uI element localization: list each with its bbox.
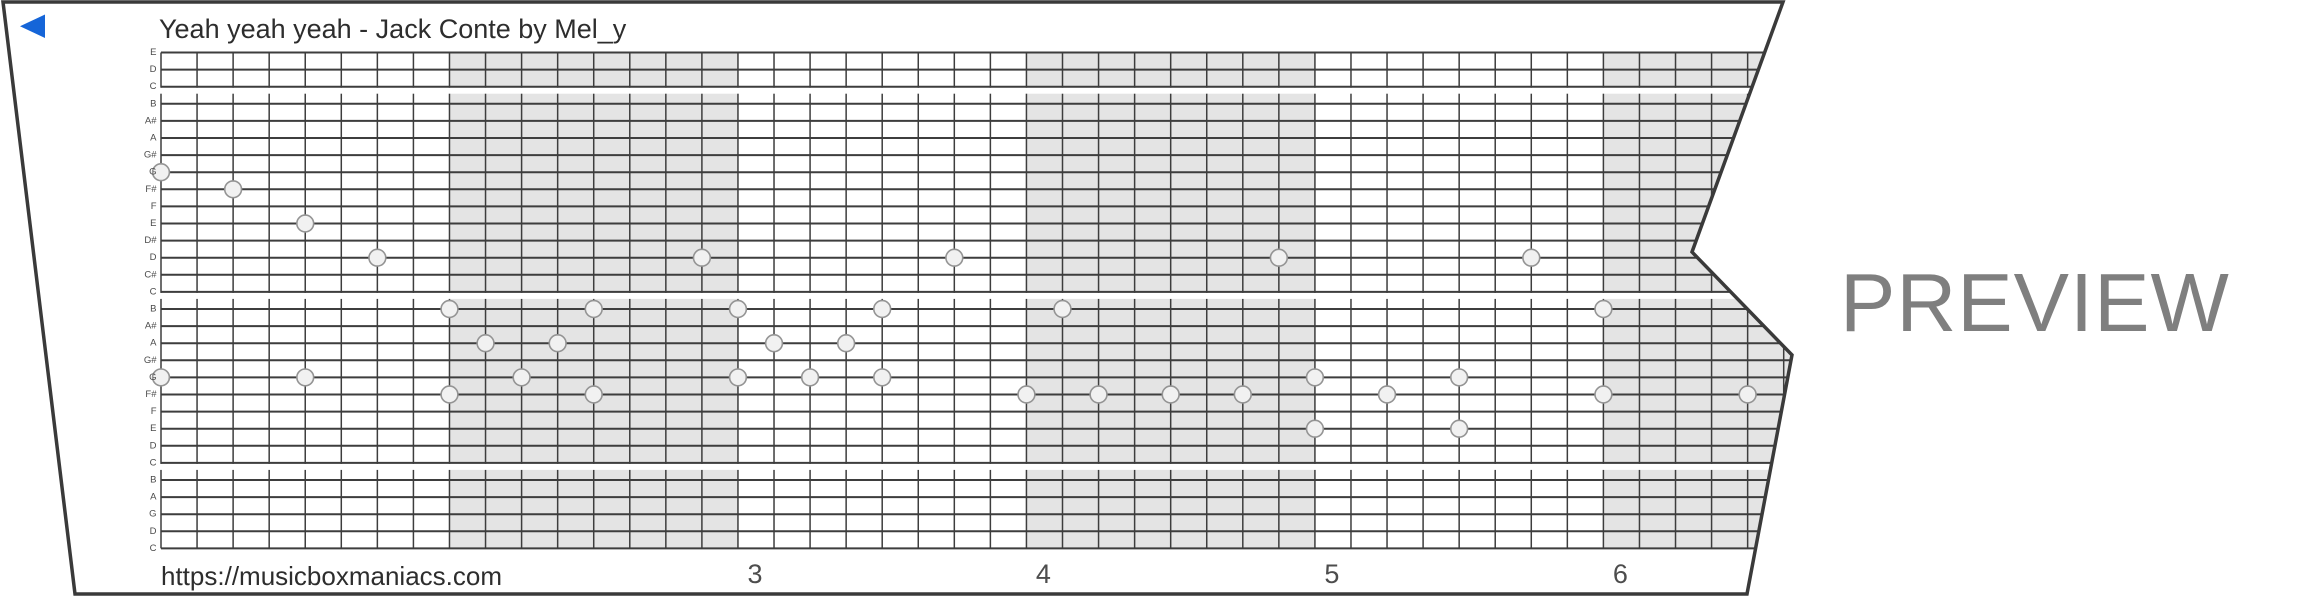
note-name-label: F# bbox=[145, 389, 157, 400]
note-dot bbox=[730, 369, 747, 386]
note-name-label: D bbox=[150, 252, 157, 263]
note-dot bbox=[1090, 386, 1107, 403]
note-name-label: D bbox=[150, 64, 157, 75]
note-dot bbox=[874, 301, 891, 318]
note-name-label: A bbox=[150, 492, 157, 503]
c-row-stripe bbox=[160, 88, 1812, 94]
note-dot bbox=[946, 249, 963, 266]
note-name-label: G bbox=[149, 167, 156, 178]
note-dot bbox=[1162, 386, 1179, 403]
note-name-label: G# bbox=[144, 355, 157, 366]
note-name-label: E bbox=[150, 47, 156, 58]
note-name-label: A# bbox=[145, 115, 157, 126]
melody-title: Yeah yeah yeah - Jack Conte by Mel_y bbox=[159, 14, 627, 44]
c-row-stripe bbox=[160, 464, 1812, 470]
note-dot bbox=[1523, 249, 1540, 266]
note-dot bbox=[1018, 386, 1035, 403]
note-name-label: C bbox=[150, 457, 157, 468]
note-name-label: C bbox=[150, 543, 157, 554]
note-dot bbox=[1595, 301, 1612, 318]
note-dot bbox=[585, 301, 602, 318]
c-row-stripe bbox=[160, 293, 1812, 299]
note-name-label: D bbox=[150, 440, 157, 451]
note-dot bbox=[477, 335, 494, 352]
preview-watermark: PREVIEW bbox=[1840, 256, 2230, 349]
note-name-label: G bbox=[149, 372, 156, 383]
note-name-label: F# bbox=[145, 184, 157, 195]
note-name-label: F bbox=[151, 406, 157, 417]
note-name-label: A# bbox=[145, 321, 157, 332]
grid-horizontal-lines bbox=[161, 53, 1812, 549]
note-dot bbox=[694, 249, 711, 266]
note-dot bbox=[1451, 369, 1468, 386]
note-dot bbox=[441, 301, 458, 318]
note-dot bbox=[730, 301, 747, 318]
note-name-labels: EDCBA#AG#GF#FED#DC#CBA#AG#GF#FEDCBAGDC bbox=[144, 47, 157, 554]
note-name-label: C# bbox=[144, 269, 157, 280]
note-dot bbox=[838, 335, 855, 352]
measure-number: 5 bbox=[1324, 559, 1339, 589]
measure-number: 4 bbox=[1036, 559, 1051, 589]
note-dot bbox=[549, 335, 566, 352]
measure-numbers: 3456 bbox=[747, 559, 1627, 589]
note-dot bbox=[1307, 369, 1324, 386]
note-name-label: B bbox=[150, 475, 156, 486]
note-name-label: B bbox=[150, 304, 156, 315]
measure-number: 6 bbox=[1613, 559, 1628, 589]
shaded-measure bbox=[1603, 53, 1812, 549]
note-dot bbox=[1054, 301, 1071, 318]
note-name-label: D bbox=[150, 526, 157, 537]
note-dot bbox=[1379, 386, 1396, 403]
note-dot bbox=[585, 386, 602, 403]
note-name-label: A bbox=[150, 133, 157, 144]
note-name-label: E bbox=[150, 423, 156, 434]
note-dot bbox=[441, 386, 458, 403]
note-dot bbox=[1451, 420, 1468, 437]
note-name-label: G# bbox=[144, 150, 157, 161]
note-dot bbox=[369, 249, 386, 266]
note-dot bbox=[225, 181, 242, 198]
note-dot bbox=[1234, 386, 1251, 403]
music-box-preview: Yeah yeah yeah - Jack Conte by Mel_y EDC… bbox=[0, 0, 2310, 597]
grid-vertical-lines bbox=[161, 53, 1784, 549]
note-dot bbox=[297, 215, 314, 232]
note-name-label: B bbox=[150, 98, 156, 109]
note-name-label: E bbox=[150, 218, 156, 229]
note-name-label: D# bbox=[144, 235, 157, 246]
play-direction-icon[interactable] bbox=[20, 15, 45, 39]
measure-number: 3 bbox=[747, 559, 762, 589]
note-dot bbox=[802, 369, 819, 386]
note-dot bbox=[513, 369, 530, 386]
note-dot bbox=[297, 369, 314, 386]
note-name-label: C bbox=[150, 81, 157, 92]
note-dot bbox=[874, 369, 891, 386]
note-dot bbox=[766, 335, 783, 352]
note-name-label: A bbox=[150, 338, 157, 349]
note-name-label: G bbox=[149, 509, 156, 520]
note-dot bbox=[1270, 249, 1287, 266]
note-name-label: F bbox=[151, 201, 157, 212]
note-dot bbox=[1307, 420, 1324, 437]
preview-canvas: Yeah yeah yeah - Jack Conte by Mel_y EDC… bbox=[0, 0, 2310, 597]
note-name-label: C bbox=[150, 286, 157, 297]
note-dot bbox=[1595, 386, 1612, 403]
note-dot bbox=[1739, 386, 1756, 403]
site-url[interactable]: https://musicboxmaniacs.com bbox=[161, 561, 502, 591]
shaded-measures bbox=[449, 53, 1812, 549]
